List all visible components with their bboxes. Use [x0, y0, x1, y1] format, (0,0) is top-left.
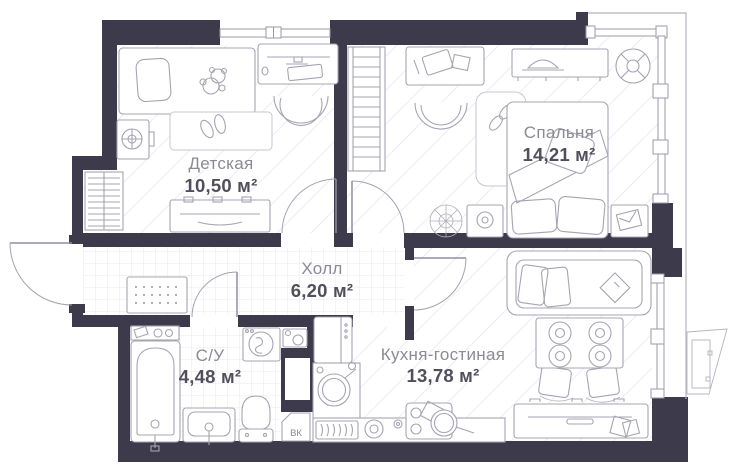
tv-console-icon [514, 399, 648, 438]
radiator-icon [85, 172, 123, 230]
room-bath-area: 4,48 м² [179, 366, 241, 387]
doormat-icon [127, 277, 187, 313]
kitchen-window-icon [651, 274, 664, 398]
room-bedroom-name: Спальня [524, 123, 594, 142]
sofa-icon [507, 251, 651, 315]
bedroom-desk-icon [406, 47, 484, 85]
room-children-name: Детская [188, 154, 253, 173]
nightstand-right-icon [611, 205, 648, 237]
bathtub-icon [131, 341, 180, 451]
shelf-icon [131, 326, 179, 340]
room-hall-area: 6,20 м² [291, 280, 353, 301]
room-kitchen-name: Кухня-гостиная [381, 345, 505, 364]
dreamcatcher-icon [430, 205, 462, 237]
entrance-door-icon[interactable] [10, 243, 72, 305]
floor-plan: ВК [0, 0, 741, 467]
nightstand-left-icon [467, 205, 503, 237]
room-bath-name: С/У [196, 346, 225, 365]
water-heater-icon [283, 329, 307, 347]
desk-icon [258, 44, 338, 84]
fridge-icon [314, 317, 352, 363]
dresser-icon [170, 197, 270, 232]
washing-machine-icon [243, 328, 280, 361]
toilet-icon [239, 396, 273, 442]
play-table-icon [117, 120, 154, 159]
wardrobe-icon [348, 47, 385, 171]
room-bedroom-area: 14,21 м² [523, 144, 596, 165]
room-children-area: 10,50 м² [185, 175, 258, 196]
room-hall-name: Холл [301, 259, 342, 278]
room-kitchen-area: 13,78 м² [407, 365, 480, 386]
shaft-box: ВК [282, 413, 310, 441]
kitchen-sink-icon [313, 363, 360, 421]
shaft-label: ВК [290, 428, 302, 439]
ac-basket-icon [687, 329, 727, 394]
sink-icon [183, 408, 235, 445]
pillow-icon [136, 58, 172, 102]
floor-plan-svg: ВК [0, 0, 741, 467]
fan-table-icon [616, 49, 650, 83]
rug [170, 112, 272, 150]
console-icon [512, 49, 608, 81]
children-window-icon [220, 27, 330, 38]
hall-furniture [127, 277, 187, 313]
